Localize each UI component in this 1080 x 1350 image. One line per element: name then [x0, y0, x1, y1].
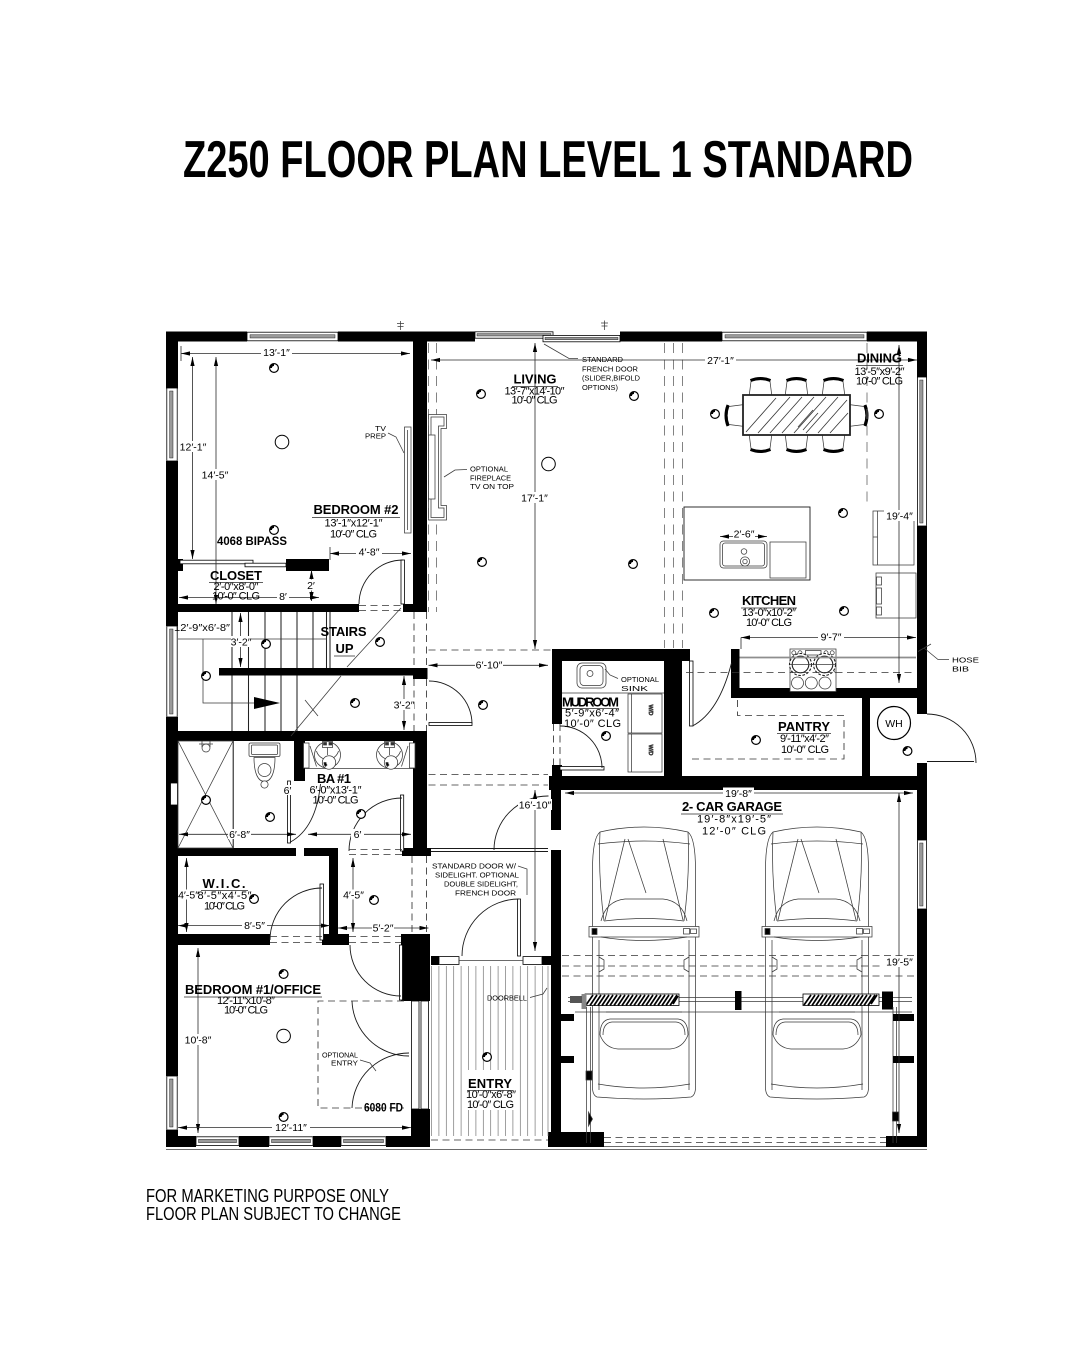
svg-text:4′-5″: 4′-5″ [178, 890, 199, 902]
svg-text:19′-8″x19′-5″: 19′-8″x19′-5″ [697, 814, 771, 826]
svg-text:19′-5″: 19′-5″ [886, 957, 913, 969]
svg-text:TV ON TOP: TV ON TOP [470, 482, 514, 491]
svg-text:12′-11″: 12′-11″ [275, 1122, 307, 1134]
svg-text:13′-1″: 13′-1″ [263, 347, 290, 359]
svg-text:6′: 6′ [284, 785, 292, 797]
svg-text:17′-1″: 17′-1″ [521, 493, 548, 505]
svg-text:(SLIDER,BIFOLD: (SLIDER,BIFOLD [582, 374, 640, 383]
svg-text:BEDROOM #2: BEDROOM #2 [314, 502, 399, 517]
svg-text:10′-0″ CLG: 10′-0″ CLG [204, 901, 245, 913]
svg-text:FRENCH DOOR: FRENCH DOOR [582, 364, 638, 373]
svg-text:14′-5″: 14′-5″ [202, 470, 229, 482]
svg-text:PANTRY: PANTRY [778, 719, 830, 734]
svg-text:27′-1″: 27′-1″ [707, 355, 734, 367]
svg-text:8′-5″: 8′-5″ [244, 920, 265, 932]
svg-text:8′: 8′ [279, 591, 287, 603]
svg-text:SINK: SINK [621, 684, 648, 693]
svg-text:5′-2″: 5′-2″ [373, 923, 394, 935]
svg-text:10′-0″ CLG: 10′-0″ CLG [512, 395, 558, 407]
svg-text:4′-8″: 4′-8″ [359, 547, 380, 559]
svg-text:3′-2″: 3′-2″ [231, 637, 252, 649]
svg-text:W.I.C.: W.I.C. [203, 876, 246, 891]
svg-text:6′-8″: 6′-8″ [229, 829, 250, 841]
svg-text:W/D: W/D [647, 705, 653, 716]
svg-text:HOSE: HOSE [952, 656, 979, 665]
svg-text:DINING: DINING [857, 351, 902, 366]
svg-text:6′: 6′ [354, 829, 362, 841]
svg-text:6′-10″: 6′-10″ [476, 660, 503, 672]
svg-text:DOUBLE SIDELIGHT,: DOUBLE SIDELIGHT, [444, 880, 518, 889]
svg-text:2′: 2′ [307, 580, 315, 592]
svg-text:10′-0″ CLG: 10′-0″ CLG [212, 591, 260, 603]
svg-text:W/D: W/D [647, 745, 653, 756]
svg-text:ENTRY: ENTRY [331, 1059, 358, 1068]
svg-text:10′-0″ CLG: 10′-0″ CLG [224, 1005, 268, 1017]
svg-text:3′-2″: 3′-2″ [394, 700, 415, 712]
svg-text:10′-0″ CLG: 10′-0″ CLG [781, 744, 829, 756]
svg-text:6080 FD: 6080 FD [364, 1103, 403, 1115]
svg-text:OPTIONS): OPTIONS) [582, 383, 618, 392]
svg-text:12′-1″: 12′-1″ [180, 442, 207, 454]
svg-text:Z250 FLOOR PLAN LEVEL 1 STANDA: Z250 FLOOR PLAN LEVEL 1 STANDARD [183, 131, 913, 189]
svg-text:BIB: BIB [952, 665, 969, 674]
svg-text:STAIRS: STAIRS [321, 624, 367, 639]
svg-text:10′-8″: 10′-8″ [185, 1035, 212, 1047]
svg-text:OPTIONAL: OPTIONAL [621, 675, 659, 684]
svg-text:PREP: PREP [365, 432, 386, 441]
svg-text:2′-6″: 2′-6″ [734, 529, 755, 541]
svg-text:12′-9″x6′-8″: 12′-9″x6′-8″ [174, 622, 230, 634]
svg-text:WH: WH [885, 718, 903, 730]
svg-text:16′-10″: 16′-10″ [519, 800, 552, 812]
svg-text:DOORBELL: DOORBELL [487, 994, 527, 1003]
svg-text:STANDARD: STANDARD [582, 355, 623, 364]
svg-text:FLOOR PLAN SUBJECT TO CHANGE: FLOOR PLAN SUBJECT TO CHANGE [146, 1203, 401, 1224]
svg-text:10′-0″ CLG: 10′-0″ CLG [746, 617, 792, 629]
svg-text:10′-0″ CLG: 10′-0″ CLG [313, 795, 359, 807]
svg-text:9′-7″: 9′-7″ [821, 632, 842, 644]
svg-text:LIVING: LIVING [514, 372, 557, 387]
svg-text:2- CAR GARAGE: 2- CAR GARAGE [682, 799, 782, 814]
svg-text:4′-5″: 4′-5″ [343, 890, 364, 902]
svg-text:UP: UP [336, 641, 354, 656]
svg-text:STANDARD DOOR W/: STANDARD DOOR W/ [432, 862, 517, 871]
svg-text:19′-4″: 19′-4″ [886, 511, 913, 523]
svg-text:10′-0″ CLG: 10′-0″ CLG [467, 1099, 514, 1111]
svg-text:SIDELIGHT. OPTIONAL: SIDELIGHT. OPTIONAL [435, 871, 519, 880]
svg-text:10′-0″ CLG: 10′-0″ CLG [330, 529, 377, 541]
svg-text:KITCHEN: KITCHEN [742, 593, 796, 608]
svg-text:4068 BIPASS: 4068 BIPASS [217, 534, 287, 548]
svg-text:10′-0″ CLG: 10′-0″ CLG [564, 718, 621, 730]
svg-text:FRENCH DOOR: FRENCH DOOR [455, 889, 516, 898]
svg-text:10′-0″ CLG: 10′-0″ CLG [856, 376, 903, 388]
